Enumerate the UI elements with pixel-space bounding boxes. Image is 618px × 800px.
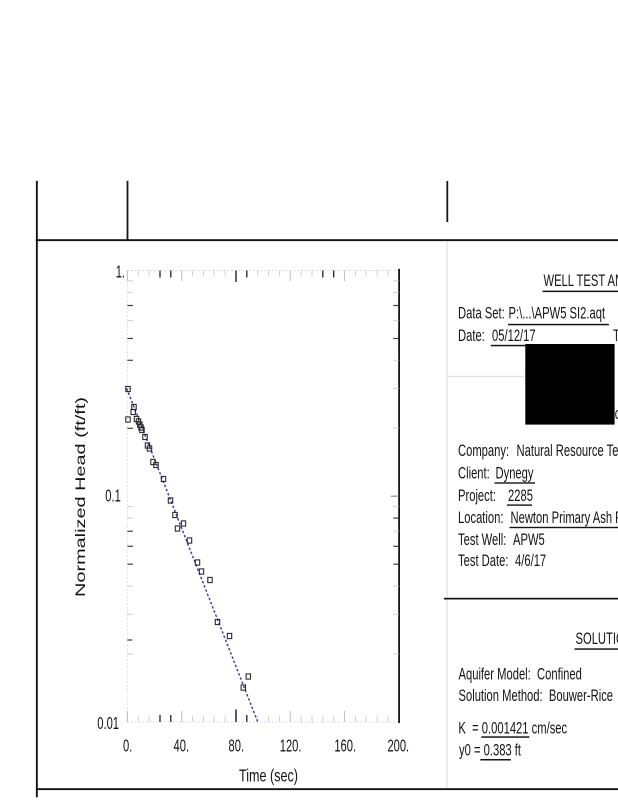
svg-text:Newton Primary Ash Pond: Newton Primary Ash Pond — [511, 509, 618, 528]
svg-text:200.: 200. — [387, 736, 409, 756]
svg-text:Normalized Head (ft/ft): Normalized Head (ft/ft) — [72, 397, 88, 597]
svg-text:K = 0.001421 cm/sec: K = 0.001421 cm/sec — [458, 719, 567, 738]
svg-text:Time (sec): Time (sec) — [239, 766, 298, 786]
svg-text:160.: 160. — [334, 736, 356, 756]
svg-text:0.01: 0.01 — [97, 713, 119, 733]
svg-text:y0 = 0.383 ft: y0 = 0.383 ft — [459, 741, 521, 760]
svg-text:Natural Resource Technology: Natural Resource Technology — [517, 442, 618, 461]
svg-text:2285: 2285 — [508, 487, 533, 506]
svg-text:P:\...\APW5 SI2.aqt: P:\...\APW5 SI2.aqt — [509, 304, 606, 323]
svg-text:80.: 80. — [229, 736, 245, 756]
svg-text:Dynegy: Dynegy — [496, 464, 535, 483]
svg-text:Data Set:: Data Set: — [458, 304, 505, 323]
svg-text:1.: 1. — [116, 262, 125, 282]
svg-text:Time:: Time: — [613, 327, 618, 346]
svg-text:0.: 0. — [123, 736, 132, 756]
svg-text:Company:: Company: — [458, 442, 509, 461]
svg-text:WELL TEST ANALYSIS: WELL TEST ANALYSIS — [544, 272, 618, 291]
svg-text:Test Date:: Test Date: — [458, 552, 508, 571]
svg-text:Aquifer Model: Confined: Aquifer Model: Confined — [459, 665, 582, 684]
svg-text:Project:: Project: — [458, 487, 496, 506]
svg-text:Date:: Date: — [458, 327, 485, 346]
svg-text:05/12/17: 05/12/17 — [492, 327, 536, 346]
svg-text:4/6/17: 4/6/17 — [515, 552, 546, 571]
svg-text:Location:: Location: — [458, 509, 503, 528]
svg-text:APW5: APW5 — [513, 531, 545, 550]
svg-text:0.1: 0.1 — [105, 486, 121, 506]
svg-text:120.: 120. — [280, 736, 302, 756]
svg-text:Client:: Client: — [458, 464, 490, 483]
svg-text:SOLUTION: SOLUTION — [576, 630, 618, 649]
svg-text:Solution Method: Bouwer-Rice: Solution Method: Bouwer-Rice — [459, 687, 614, 706]
svg-text:Test Well:: Test Well: — [458, 531, 506, 550]
svg-text:40.: 40. — [174, 736, 190, 756]
